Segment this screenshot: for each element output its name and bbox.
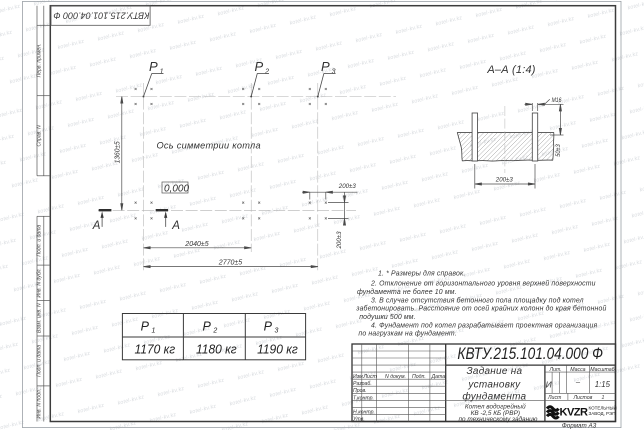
svg-text:подушки 500 мм.: подушки 500 мм. (359, 313, 416, 321)
svg-text:0,000: 0,000 (164, 184, 189, 195)
svg-text:1:15: 1:15 (595, 380, 611, 389)
svg-text:Масштаб: Масштаб (590, 367, 615, 373)
svg-text:Подп. и дата: Подп. и дата (37, 345, 43, 377)
svg-text:Лист: Лист (363, 374, 378, 380)
svg-text:Формат А3: Формат А3 (562, 422, 597, 429)
svg-text:Подп.: Подп. (412, 374, 426, 380)
svg-text:Разраб.: Разраб. (353, 381, 372, 387)
svg-text:КОТЕЛЬНЫЙ: КОТЕЛЬНЫЙ (589, 403, 617, 410)
svg-text:И: И (546, 379, 553, 389)
svg-text:2770±5: 2770±5 (218, 258, 243, 267)
svg-text:фундамента не более 10 мм.: фундамента не более 10 мм. (357, 288, 457, 296)
svg-text:Инв. N дубл.: Инв. N дубл. (37, 268, 43, 298)
svg-text:Задание на: Задание на (467, 366, 523, 377)
svg-text:200±3: 200±3 (338, 183, 356, 190)
svg-text:Подп. и дата: Подп. и дата (37, 225, 43, 257)
svg-text:A: A (171, 220, 180, 232)
svg-text:1360±5: 1360±5 (112, 140, 121, 163)
svg-text:1190 кг: 1190 кг (257, 342, 298, 357)
svg-text:A: A (92, 220, 101, 232)
svg-text:по техническому заданию: по техническому заданию (459, 415, 538, 423)
svg-text:2. Отклонение от горизонтально: 2. Отклонение от горизонтального уровня … (370, 280, 596, 288)
svg-text:N докум.: N докум. (385, 374, 406, 380)
svg-text:Т.контр.: Т.контр. (353, 395, 374, 401)
svg-text:1. * Размеры для справок.: 1. * Размеры для справок. (378, 269, 465, 277)
svg-text:4. Фундамент под котел разраба: 4. Фундамент под котел разрабатывает про… (371, 321, 597, 329)
svg-text:Н.контр.: Н.контр. (353, 409, 375, 415)
svg-text:фундамента: фундамента (462, 391, 526, 403)
svg-text:2040±5: 2040±5 (184, 239, 209, 248)
svg-text:Лист: Лист (547, 395, 562, 401)
svg-text:Изм.: Изм. (353, 374, 364, 380)
svg-text:КВТУ.215.101.04.000 Ф: КВТУ.215.101.04.000 Ф (457, 345, 603, 363)
svg-text:Листов: Листов (573, 395, 593, 401)
svg-text:Утв.: Утв. (353, 416, 365, 422)
svg-text:1: 1 (602, 395, 605, 401)
svg-text:–: – (575, 378, 581, 387)
svg-text:Справ. N: Справ. N (37, 125, 43, 147)
svg-text:А–А (1:4): А–А (1:4) (486, 64, 535, 76)
svg-text:KVZR: KVZR (560, 406, 589, 418)
svg-text:Дата: Дата (431, 374, 446, 380)
svg-text:Взам. инв. N: Взам. инв. N (37, 303, 43, 333)
svg-text:Масса: Масса (570, 367, 585, 373)
svg-text:забетонировать. Расстояние от: забетонировать. Расстояние от осей крайн… (355, 305, 606, 313)
svg-text:50±3: 50±3 (555, 144, 562, 157)
svg-text:установку: установку (467, 380, 521, 391)
svg-text:Пров.: Пров. (353, 388, 367, 394)
svg-text:Лит.: Лит. (549, 367, 562, 373)
svg-text:200±3: 200±3 (336, 231, 343, 249)
svg-text:КВТУ.215.101.04.000 Ф: КВТУ.215.101.04.000 Ф (54, 11, 150, 21)
svg-text:по нагрузкам на фундамент.: по нагрузкам на фундамент. (358, 330, 456, 338)
svg-text:Ось симметрии котла: Ось симметрии котла (157, 140, 261, 150)
svg-text:1180 кг: 1180 кг (196, 342, 237, 357)
svg-text:200±3: 200±3 (495, 177, 513, 184)
svg-text:ЗАВОД, РЭП: ЗАВОД, РЭП (589, 411, 616, 416)
svg-text:Инв. N подл.: Инв. N подл. (37, 389, 43, 419)
svg-text:М16: М16 (552, 97, 562, 104)
svg-text:1170 кг: 1170 кг (135, 342, 176, 357)
svg-text:3. В случае отсутствия бетонно: 3. В случае отсутствия бетонного пола пл… (371, 296, 584, 304)
svg-text:Перв. примен.: Перв. примен. (37, 44, 43, 78)
